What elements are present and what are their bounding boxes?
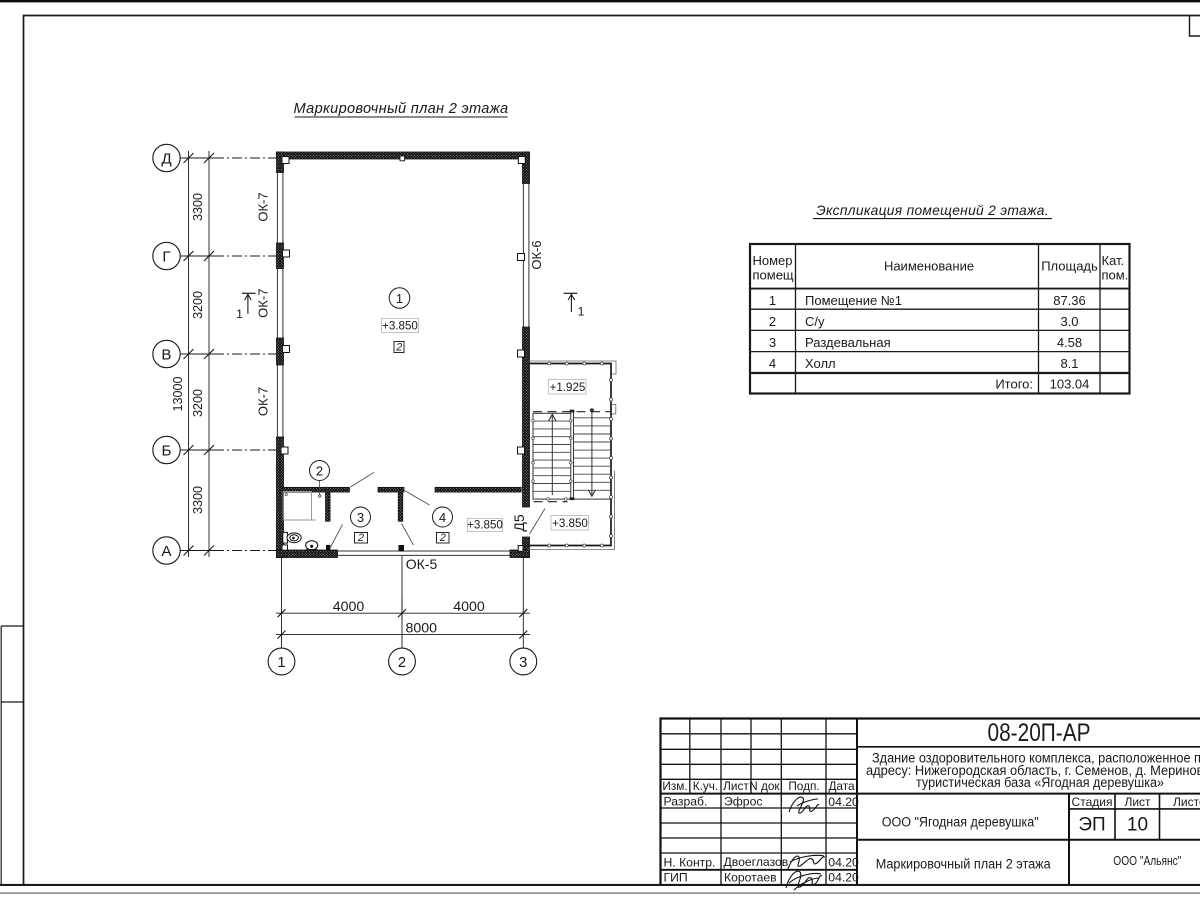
- svg-text:С/у: С/у: [805, 314, 825, 329]
- svg-text:Номер: Номер: [753, 253, 793, 268]
- svg-text:ООО "Ягодная деревушка": ООО "Ягодная деревушка": [882, 815, 1039, 831]
- svg-text:Подп.: Подп.: [788, 779, 819, 793]
- svg-text:Коротаев: Коротаев: [724, 871, 777, 885]
- svg-text:помещ.: помещ.: [753, 268, 798, 283]
- svg-text:ОК-7: ОК-7: [256, 387, 271, 416]
- svg-text:Холл: Холл: [805, 356, 836, 371]
- svg-text:3: 3: [769, 335, 776, 350]
- svg-text:ЭП: ЭП: [1078, 815, 1105, 836]
- svg-text:1: 1: [769, 293, 776, 308]
- svg-text:3: 3: [357, 510, 364, 525]
- svg-text:4.58: 4.58: [1057, 335, 1082, 350]
- svg-text:Разраб.: Разраб.: [664, 795, 708, 809]
- svg-text:Маркировочный план 2 этажа: Маркировочный план 2 этажа: [876, 856, 1051, 872]
- svg-text:N док.: N док.: [749, 779, 783, 793]
- svg-text:3300: 3300: [191, 486, 205, 514]
- svg-text:Кат.: Кат.: [1102, 253, 1125, 268]
- svg-text:ОК-6: ОК-6: [529, 240, 544, 269]
- svg-text:ООО "Альянс": ООО "Альянс": [1113, 854, 1181, 868]
- svg-text:Экспликация помещений 2 этажа.: Экспликация помещений 2 этажа.: [816, 203, 1049, 218]
- svg-text:+3.850: +3.850: [382, 319, 418, 332]
- svg-text:пом.: пом.: [1102, 268, 1129, 283]
- svg-text:4000: 4000: [333, 599, 365, 615]
- svg-text:Итого:: Итого:: [995, 377, 1033, 392]
- svg-text:4000: 4000: [453, 599, 485, 615]
- svg-text:Б: Б: [162, 443, 172, 460]
- svg-text:87.36: 87.36: [1053, 293, 1086, 308]
- svg-text:А: А: [161, 543, 172, 560]
- svg-text:04.20: 04.20: [828, 795, 859, 809]
- svg-text:Г: Г: [162, 249, 170, 266]
- svg-text:Помещение №1: Помещение №1: [805, 293, 902, 308]
- svg-text:3.0: 3.0: [1060, 314, 1078, 329]
- svg-text:ГИП: ГИП: [664, 871, 688, 885]
- svg-text:Дата: Дата: [828, 779, 855, 793]
- svg-text:2: 2: [439, 532, 446, 544]
- svg-text:Эфрос: Эфрос: [724, 795, 762, 809]
- svg-text:3200: 3200: [191, 389, 205, 417]
- svg-text:3300: 3300: [191, 193, 205, 221]
- svg-text:К.уч.: К.уч.: [693, 779, 718, 793]
- svg-text:Площадь: Площадь: [1041, 259, 1098, 274]
- svg-text:2: 2: [398, 655, 406, 671]
- svg-text:Раздевальная: Раздевальная: [805, 335, 891, 350]
- svg-text:8000: 8000: [406, 620, 438, 636]
- svg-text:туристическая база «Ягодная де: туристическая база «Ягодная деревушка»: [916, 775, 1164, 791]
- svg-text:Д: Д: [161, 151, 171, 168]
- svg-text:Стадия: Стадия: [1072, 795, 1113, 809]
- svg-text:ОК-7: ОК-7: [256, 289, 271, 318]
- svg-text:Маркировочный план 2 этажа: Маркировочный план 2 этажа: [294, 101, 509, 117]
- svg-text:1: 1: [396, 291, 403, 306]
- svg-text:2: 2: [395, 342, 402, 354]
- svg-text:Н. Контр.: Н. Контр.: [664, 856, 716, 870]
- svg-text:Лист: Лист: [723, 779, 749, 793]
- svg-text:04.20: 04.20: [828, 871, 859, 885]
- svg-text:+3.850: +3.850: [552, 517, 588, 530]
- svg-text:1: 1: [236, 307, 243, 321]
- svg-text:2: 2: [316, 463, 323, 478]
- svg-text:4: 4: [769, 356, 776, 371]
- svg-text:3: 3: [519, 655, 527, 671]
- svg-text:04.20: 04.20: [828, 856, 859, 870]
- svg-text:8.1: 8.1: [1060, 356, 1078, 371]
- svg-text:Лист: Лист: [1124, 795, 1151, 809]
- svg-text:+3.850: +3.850: [467, 519, 503, 532]
- svg-text:103.04: 103.04: [1050, 377, 1090, 392]
- svg-text:13000: 13000: [171, 376, 185, 411]
- svg-text:ОК-7: ОК-7: [256, 192, 271, 221]
- svg-text:Наименование: Наименование: [884, 259, 974, 274]
- svg-text:1: 1: [578, 305, 585, 319]
- svg-text:08-20П-АР: 08-20П-АР: [988, 719, 1091, 747]
- svg-text:1: 1: [277, 655, 285, 671]
- svg-text:2: 2: [357, 532, 364, 544]
- svg-text:2: 2: [769, 314, 776, 329]
- svg-text:В: В: [161, 347, 171, 364]
- svg-text:Д5: Д5: [511, 514, 527, 531]
- svg-text:Двоеглазов: Двоеглазов: [724, 855, 789, 869]
- svg-text:ОК-5: ОК-5: [406, 556, 438, 572]
- svg-text:+1.925: +1.925: [550, 381, 586, 394]
- svg-text:Изм.: Изм.: [662, 779, 687, 793]
- svg-text:Листов: Листов: [1173, 795, 1200, 809]
- svg-text:3200: 3200: [191, 291, 205, 319]
- svg-text:10: 10: [1127, 815, 1148, 836]
- svg-text:4: 4: [439, 510, 446, 525]
